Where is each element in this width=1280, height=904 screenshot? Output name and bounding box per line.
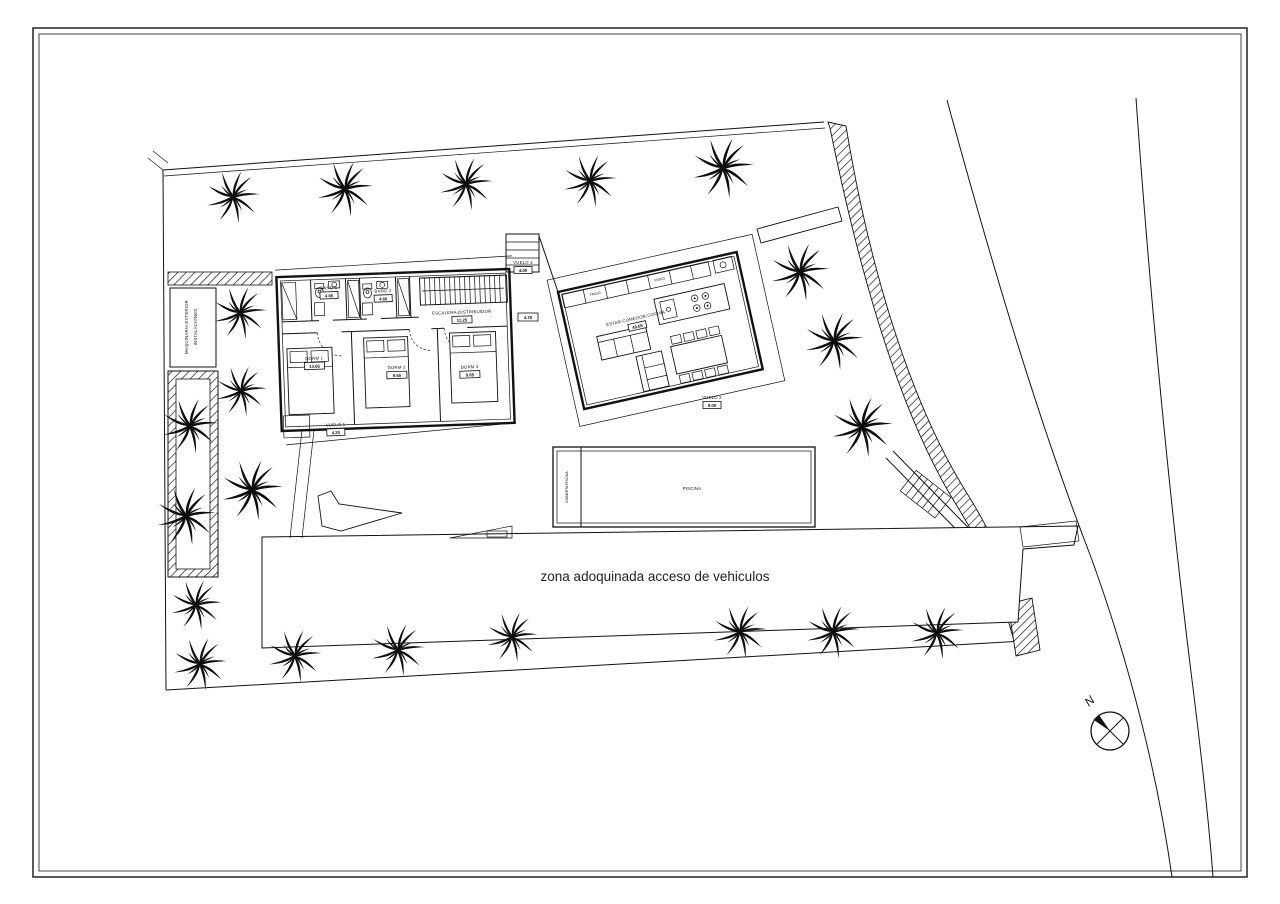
compass-rose: N: [1082, 693, 1129, 750]
dorm3-area: 9.65: [466, 372, 475, 377]
fridge2-label: FRIGO: [654, 276, 666, 282]
bano2-label: BAÑO 2: [374, 288, 392, 294]
dorm2-label: DORM 2: [388, 365, 406, 371]
paso-area: 4.70: [524, 315, 533, 320]
palm-tree: [207, 171, 259, 223]
dorm2-area: 9.65: [393, 373, 402, 378]
palm-tree: [564, 155, 616, 207]
palm-tree: [174, 638, 226, 690]
pool-label: PISCINA: [683, 486, 702, 491]
palm-tree: [217, 367, 267, 416]
interior-stairs: [420, 275, 508, 305]
vuelo1-area: 4.20: [332, 430, 341, 435]
vuelo2-label: VUELO 2: [702, 395, 722, 400]
palm-tree: [806, 313, 864, 370]
palm-tree: [214, 287, 266, 339]
driveway-label: zona adoquinada acceso de vehiculos: [541, 569, 770, 584]
fridge1-label: FRIGO: [590, 291, 602, 297]
palm-tree: [172, 581, 222, 630]
garden-path: [757, 207, 842, 243]
road: [947, 98, 1213, 877]
bano2-area: 4.60: [379, 296, 388, 301]
vuelo3-label: VUELO 3: [513, 260, 533, 265]
palm-tree: [318, 162, 373, 217]
drawing-sheet: MAQUINARIA EXTERIOR INSTALACIONES: [0, 0, 1280, 904]
escalera-area: 11.25: [457, 317, 468, 322]
dorm1-area: 13.65: [309, 364, 321, 369]
entrance-porch: VUELO 3 4.00 4.70: [506, 234, 558, 321]
dorm3-label: DORM 3: [461, 364, 479, 370]
escalera-label: ESCALERA-DISTRIBUIDOR: [432, 309, 491, 316]
hatch-band-top: [168, 272, 272, 285]
bedroom-wing: BAÑO 1 4.65 BAÑO 2 4.60 ESCALERA-DISTRIB…: [275, 256, 518, 445]
pool-cover-label: CUBIERTA PISCINA: [565, 471, 569, 503]
palm-tree: [694, 139, 754, 199]
landscape-feature: [318, 491, 402, 531]
compass-north-label: N: [1082, 693, 1098, 709]
vuelo2-area: 9.00: [708, 403, 717, 408]
vuelo2-label-group: VUELO 2 9.00: [702, 395, 722, 409]
maquinaria-label-line1: MAQUINARIA EXTERIOR: [184, 300, 189, 354]
pool: CUBIERTA PISCINA PISCINA: [553, 447, 815, 527]
palm-tree: [223, 461, 283, 521]
dorm1-label: DORM 1: [305, 355, 323, 361]
palm-tree: [772, 244, 830, 301]
palm-tree: [440, 158, 492, 210]
living-wing: FRIGO FRIGO: [547, 234, 785, 426]
vuelo1-label: VUELO 1: [326, 422, 346, 428]
palm-tree: [833, 398, 893, 458]
site-plan-svg: MAQUINARIA EXTERIOR INSTALACIONES: [0, 0, 1280, 904]
maquinaria-label-line2: INSTALACIONES: [193, 309, 198, 346]
sofa-group: [597, 324, 670, 400]
kitchen-island: [654, 284, 730, 325]
vuelo3-area: 4.00: [519, 268, 528, 273]
bano1-label: BAÑO 1: [320, 285, 338, 291]
bano1-area: 4.65: [325, 293, 334, 298]
